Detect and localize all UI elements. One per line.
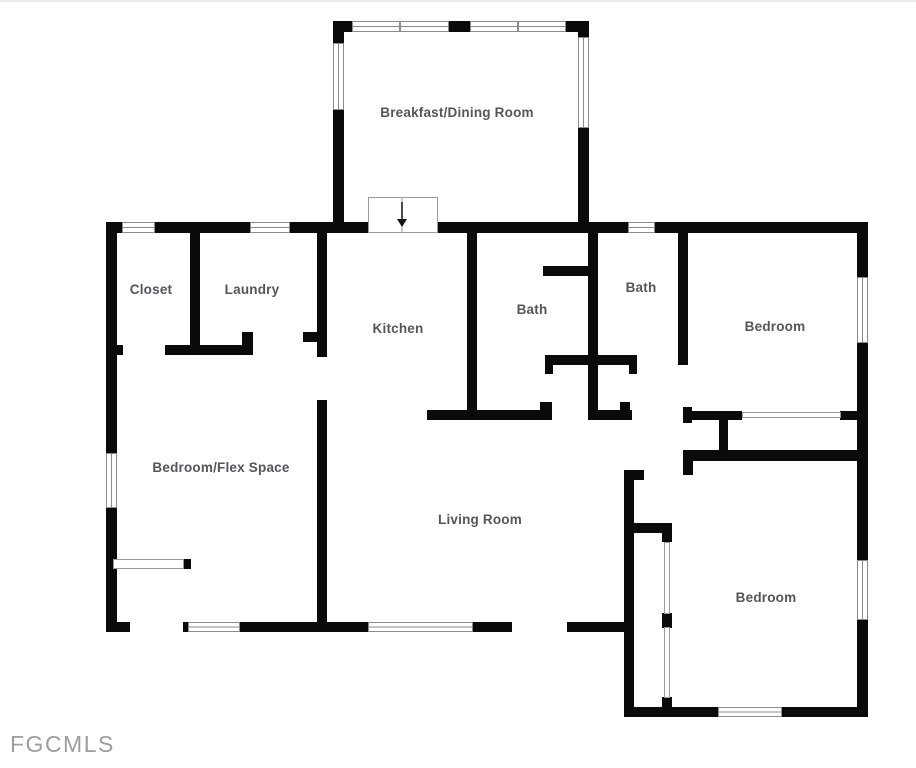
room-label-bath-center: Bath: [517, 302, 548, 317]
sliding-door-panel: [665, 628, 670, 698]
wall-segment: [683, 450, 857, 461]
wall-segment: [678, 232, 688, 365]
wall-segment: [588, 232, 598, 413]
room-label-living-room: Living Room: [438, 512, 522, 527]
windows: [107, 22, 868, 717]
door-opening: [130, 622, 183, 632]
wall-segment: [840, 411, 857, 420]
room-label-bedroom-flex-space: Bedroom/Flex Space: [152, 460, 289, 475]
wall-segment: [427, 410, 552, 420]
sliding-door-panel: [743, 413, 841, 418]
wall-segment: [624, 470, 644, 480]
wall-segment: [719, 420, 728, 450]
wall-segment: [117, 345, 123, 355]
wall-segment: [683, 411, 742, 420]
wall-segment: [540, 402, 552, 410]
window-glyph: [353, 22, 400, 32]
window-glyph: [719, 708, 782, 717]
window-glyph: [107, 454, 117, 508]
wall-segment: [683, 450, 693, 475]
watermark-text: FGCMLS: [10, 731, 115, 758]
window-glyph: [471, 22, 518, 32]
wall-segment: [545, 365, 553, 374]
window-glyph: [189, 623, 240, 632]
wall-segment: [662, 697, 672, 717]
window-glyph: [579, 38, 589, 128]
walls: [106, 21, 868, 717]
floorplan-drawing: Breakfast/Dining RoomClosetLaundryKitche…: [0, 0, 916, 768]
sliding-door-panel: [114, 560, 184, 569]
wall-segment: [467, 232, 477, 412]
room-label-laundry: Laundry: [225, 282, 280, 297]
window-glyph: [369, 623, 473, 632]
wall-segment: [183, 559, 191, 569]
door-opening: [317, 357, 327, 400]
window-glyph: [401, 22, 449, 32]
room-label-closet: Closet: [130, 282, 173, 297]
room-label-breakfast-dining-room: Breakfast/Dining Room: [380, 105, 533, 120]
window-glyph: [334, 44, 344, 110]
window-glyph: [123, 223, 155, 233]
window-glyph: [251, 223, 290, 233]
wall-segment: [662, 613, 672, 628]
window-glyph: [519, 22, 566, 32]
wall-segment: [545, 355, 637, 365]
room-label-bedroom-right: Bedroom: [745, 319, 806, 334]
room-label-bedroom-bottom: Bedroom: [736, 590, 797, 605]
wall-segment: [165, 345, 245, 355]
room-label-kitchen: Kitchen: [373, 321, 424, 336]
entry-stairs: [369, 198, 438, 233]
sliding-door-panel: [665, 543, 670, 614]
wall-segment: [662, 523, 672, 542]
stairs-box: [369, 198, 438, 233]
wall-segment: [317, 232, 327, 632]
wall-segment: [190, 232, 200, 355]
wall-segment: [242, 332, 253, 355]
window-glyph: [629, 223, 655, 233]
floorplan-page: Breakfast/Dining RoomClosetLaundryKitche…: [0, 0, 916, 768]
wall-segment: [106, 222, 868, 233]
wall-segment: [588, 410, 632, 420]
wall-segment: [624, 470, 634, 717]
window-glyph: [858, 278, 868, 343]
door-opening: [512, 622, 567, 632]
wall-segment: [106, 222, 117, 632]
room-label-bath-right: Bath: [626, 280, 657, 295]
wall-segment: [629, 365, 637, 374]
wall-segment: [620, 402, 630, 410]
window-glyph: [858, 561, 868, 620]
